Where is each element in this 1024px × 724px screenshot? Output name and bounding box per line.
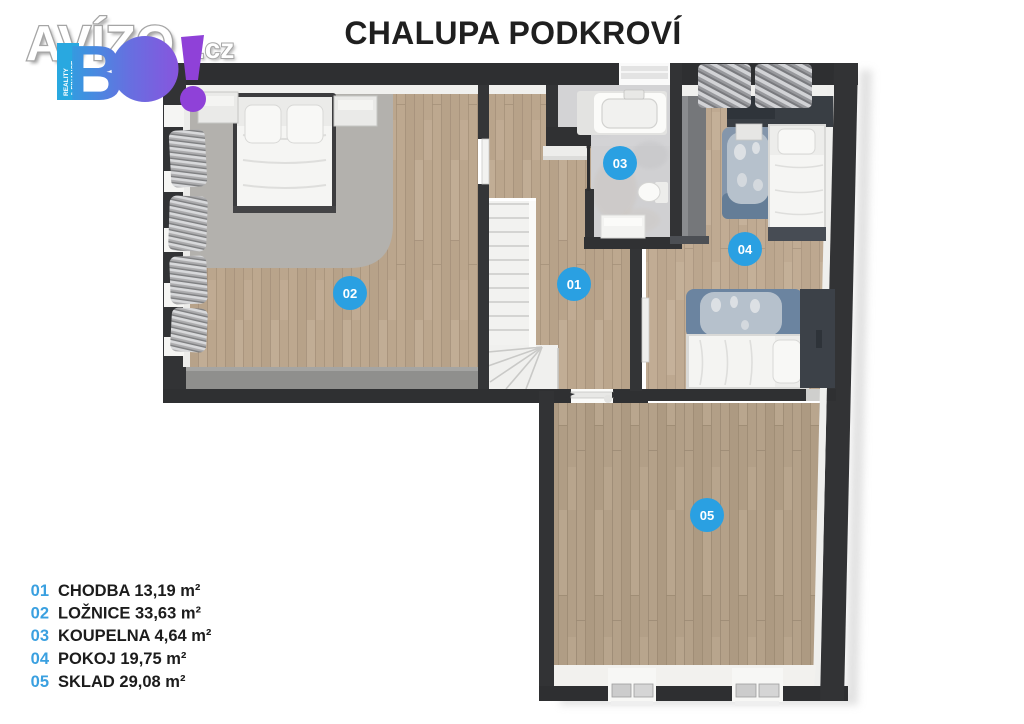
svg-text:04: 04 [738, 242, 753, 257]
svg-text:CHODBA 13,19 m²: CHODBA 13,19 m² [58, 582, 201, 600]
svg-text:KOUPELNA 4,64 m²: KOUPELNA 4,64 m² [58, 627, 212, 645]
svg-text:02: 02 [31, 605, 49, 623]
svg-text:SKLAD 29,08 m²: SKLAD 29,08 m² [58, 673, 186, 691]
svg-text:03: 03 [31, 627, 49, 645]
svg-text:01: 01 [31, 582, 49, 600]
svg-text:POKOJ 19,75 m²: POKOJ 19,75 m² [58, 650, 187, 668]
svg-text:CHALUPA PODKROVÍ: CHALUPA PODKROVÍ [344, 15, 682, 51]
svg-text:03: 03 [613, 156, 627, 171]
svg-text:04: 04 [31, 650, 50, 668]
svg-text:02: 02 [343, 286, 357, 301]
svg-text:05: 05 [700, 508, 714, 523]
svg-text:LOŽNICE 33,63 m²: LOŽNICE 33,63 m² [58, 604, 202, 623]
svg-text:05: 05 [31, 673, 49, 691]
svg-text:01: 01 [567, 277, 581, 292]
